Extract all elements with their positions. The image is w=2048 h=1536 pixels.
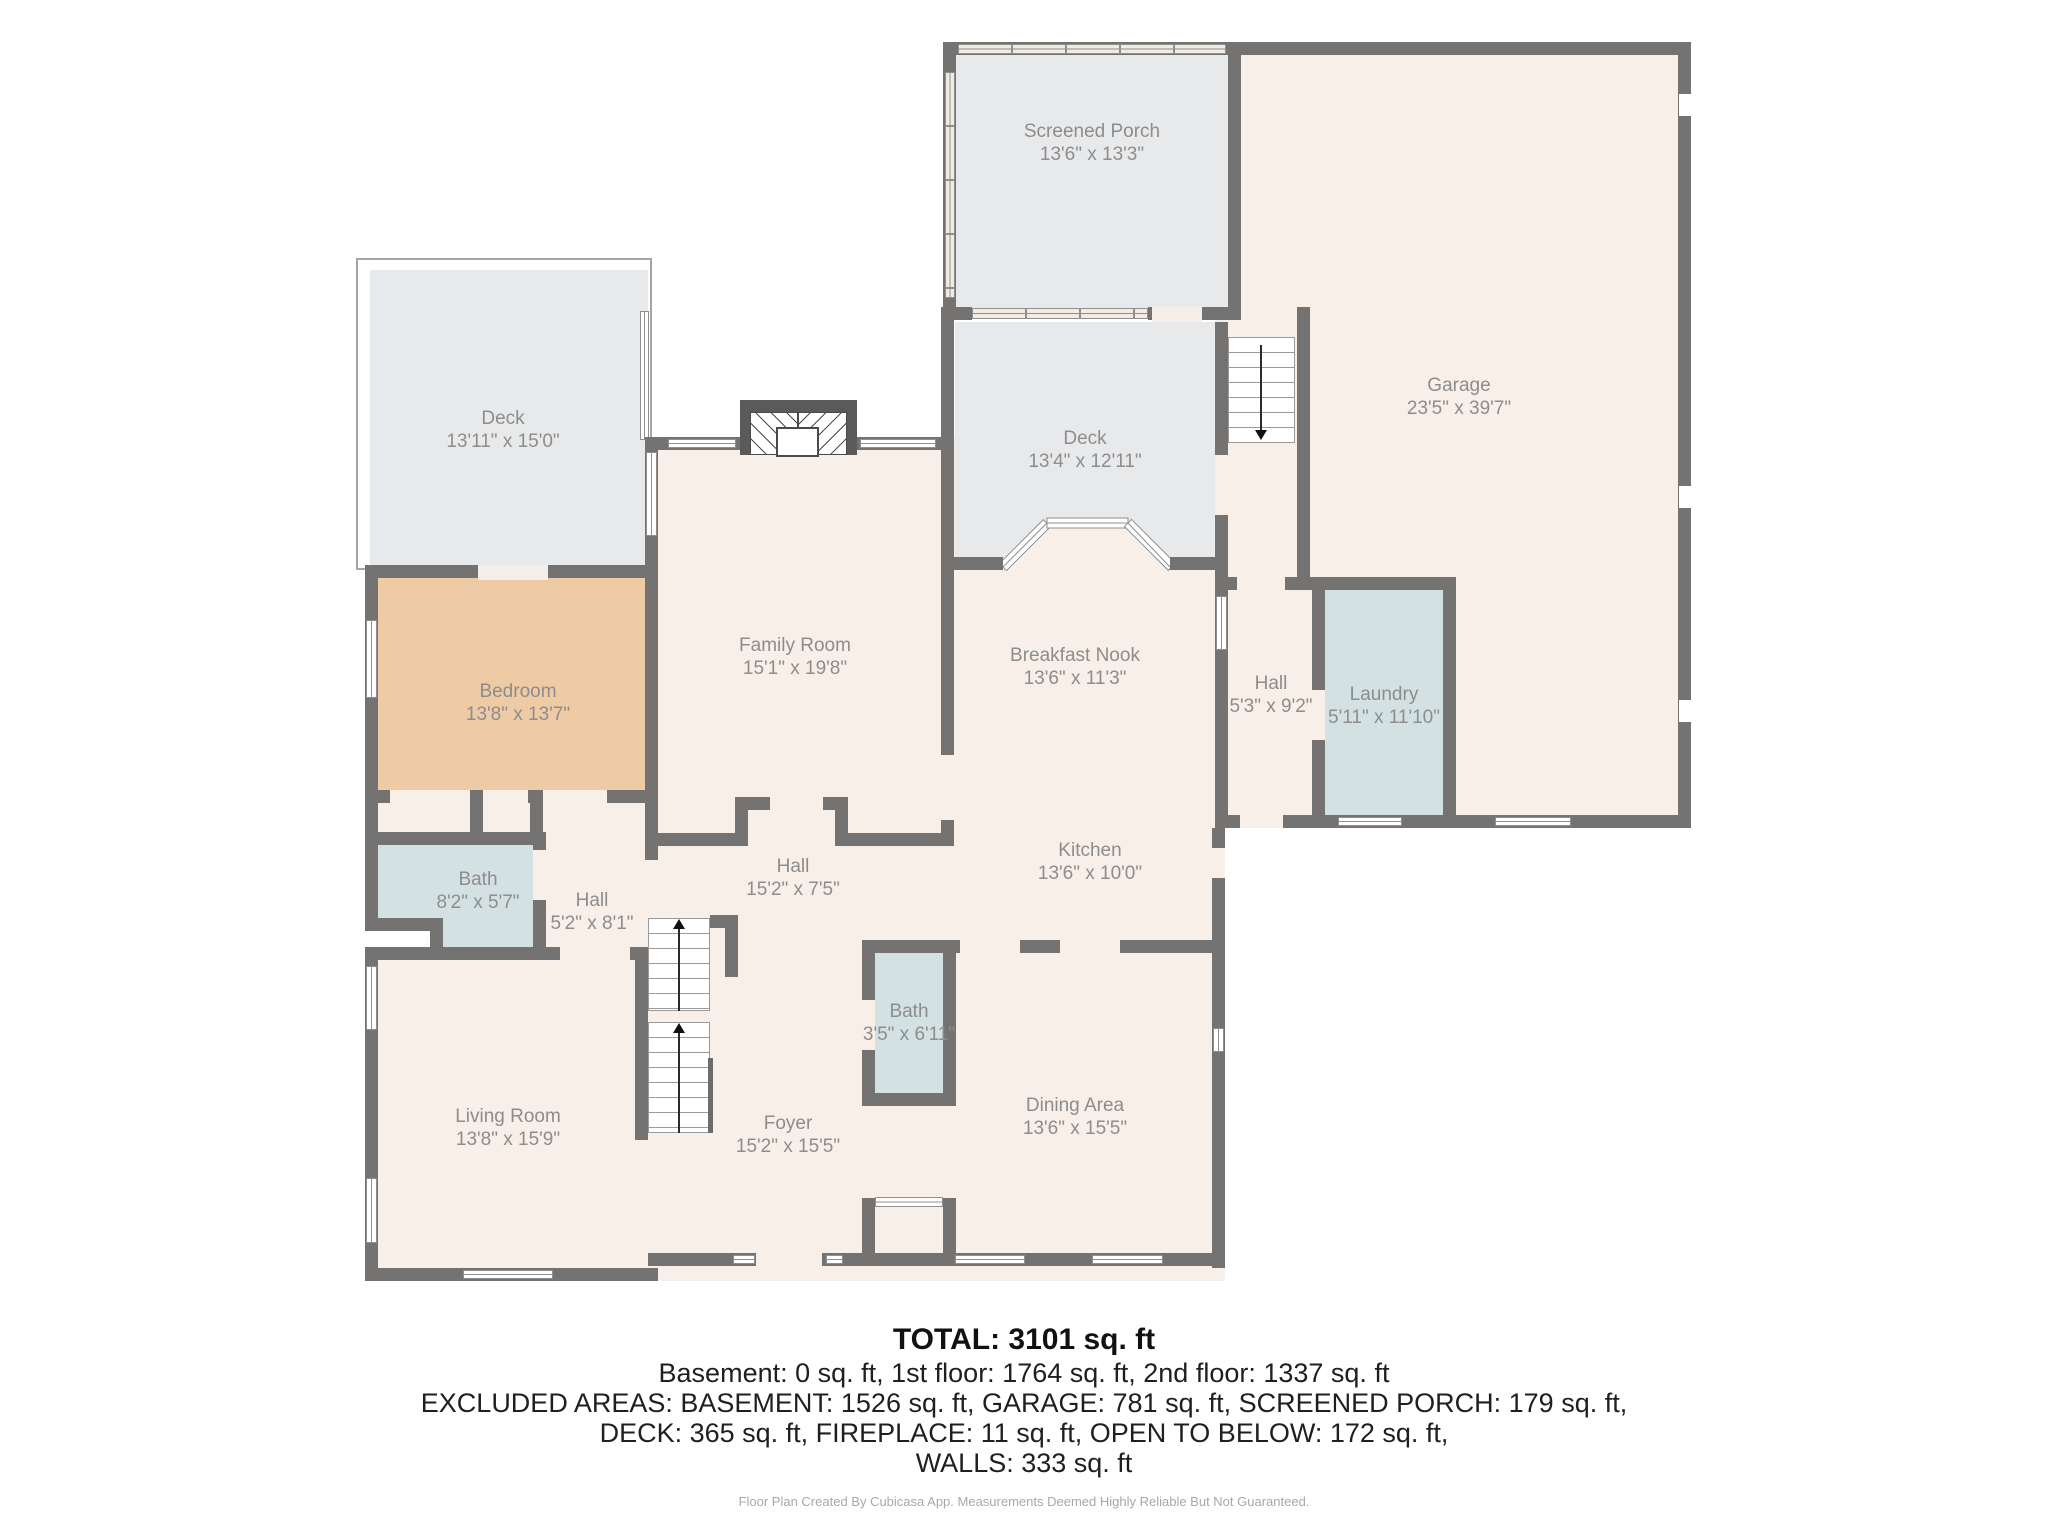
bay-window [985,510,1185,572]
wall-segment [365,832,546,845]
room-dims: 5'3" x 9'2" [1229,695,1312,718]
room-label-screened-porch: Screened Porch 13'6" x 13'3" [1024,120,1160,166]
wall-segment [548,565,658,578]
wall-segment [1228,42,1691,55]
room-name: Garage [1407,374,1511,397]
wall-segment [533,900,546,952]
screened-porch-fill [955,55,1228,309]
wall-segment [1215,515,1228,828]
room-label-deck-left: Deck 13'11" x 15'0" [446,407,559,453]
family-room-window [860,439,936,448]
wall-segment [1285,577,1456,590]
wall-segment [365,918,443,931]
wall-segment [533,832,546,850]
room-label-hall-garage: Hall 5'3" x 9'2" [1229,672,1312,718]
room-name: Kitchen [1038,839,1142,862]
room-dims: 13'4" x 12'11" [1028,450,1141,473]
wall-segment [941,820,954,846]
porch-screen-window [972,308,1148,319]
room-label-hall-bedroom: Hall 5'2" x 8'1" [550,889,633,935]
room-name: Screened Porch [1024,120,1160,143]
wall-segment [365,565,478,578]
wall-segment [862,1198,875,1253]
bath-main-fill-lower [443,918,533,950]
room-name: Bath [436,868,519,891]
wall-segment [1312,740,1325,818]
room-name: Living Room [455,1105,561,1128]
wall-segment [862,1093,956,1106]
wall-segment [645,833,735,846]
room-dims: 13'6" x 13'3" [1024,143,1160,166]
wall-notch [1679,700,1691,722]
living-room-window [366,1178,377,1243]
room-dims: 5'11" x 11'10" [1328,706,1440,729]
wall-segment [470,803,483,832]
dining-window [955,1255,1025,1264]
wall-segment [430,931,443,947]
area-summary: TOTAL: 3101 sq. ft Basement: 0 sq. ft, 1… [0,1322,2048,1478]
kitchen-side-window [1216,596,1227,650]
wall-segment [1202,307,1241,320]
dining-side-window [1213,1028,1224,1052]
wall-segment [1297,307,1310,590]
wall-segment [725,915,738,977]
room-label-family-room: Family Room 15'1" x 19'8" [739,634,851,680]
wall-segment [941,307,954,755]
room-dims: 15'1" x 19'8" [739,657,851,680]
wall-segment [748,797,770,810]
total-area: TOTAL: 3101 sq. ft [0,1322,2048,1358]
room-label-breakfast-nook: Breakfast Nook 13'6" x 11'3" [1010,644,1140,690]
wall-segment [943,1198,956,1253]
wall-segment [635,960,648,1140]
foyer-window [733,1255,755,1264]
wall-segment [1212,878,1225,1268]
stair-direction-line [1260,345,1262,433]
room-dims: 13'6" x 11'3" [1010,667,1140,690]
wall-segment [530,803,543,832]
deck-railing-segment [640,311,649,440]
wall-notch [1679,94,1691,116]
room-dims: 8'2" x 5'7" [436,891,519,914]
wall-segment [1215,322,1228,455]
room-dims: 13'6" x 10'0" [1038,862,1142,885]
porch-screen-window [945,72,955,298]
room-dims: 13'6" x 15'5" [1023,1117,1127,1140]
room-name: Laundry [1328,683,1440,706]
stair-down-arrow-icon [1255,430,1267,440]
room-dims: 15'2" x 7'5" [746,878,840,901]
wall-segment [365,790,390,803]
room-dims: 23'5" x 39'7" [1407,397,1511,420]
room-name: Bedroom [466,680,570,703]
room-label-bedroom: Bedroom 13'8" x 13'7" [466,680,570,726]
room-label-bath-main: Bath 8'2" x 5'7" [436,868,519,914]
wall-segment [954,557,1003,570]
excluded-areas-line3: WALLS: 333 sq. ft [0,1448,2048,1478]
wall-segment [1120,940,1225,953]
wall-segment [1443,577,1456,818]
wall-segment [528,790,543,803]
wall-segment [630,947,648,960]
stair-up-arrow-icon [673,919,685,929]
room-name: Breakfast Nook [1010,644,1140,667]
room-label-bath-center: Bath 3'5" x 6'11" [863,1000,955,1046]
wall-segment [847,833,941,846]
door-opening [1152,307,1202,322]
vestibule-window [875,1197,943,1207]
wall-notch [1679,486,1691,508]
garage-window [1495,817,1571,826]
wall-segment [823,797,835,810]
foyer-window [826,1255,843,1264]
living-room-window [463,1270,553,1279]
room-label-garage: Garage 23'5" x 39'7" [1407,374,1511,420]
wall-segment [862,953,875,1000]
wall-segment [1228,42,1241,320]
room-label-living-room: Living Room 13'8" x 15'9" [455,1105,561,1151]
excluded-areas-line2: DECK: 365 sq. ft, FIREPLACE: 11 sq. ft, … [0,1418,2048,1448]
room-name: Bath [863,1000,955,1023]
wall-segment [1020,940,1060,953]
family-room-side-window [646,452,657,536]
room-label-laundry: Laundry 5'11" x 11'10" [1328,683,1440,729]
room-label-hall-center: Hall 15'2" x 7'5" [746,855,840,901]
stair-rail [708,1058,713,1133]
wall-segment [1170,557,1215,570]
wall-segment [1312,588,1325,690]
room-label-deck-middle: Deck 13'4" x 12'11" [1028,427,1141,473]
wall-segment [1228,577,1237,590]
room-dims: 3'5" x 6'11" [863,1023,955,1046]
floor-areas: Basement: 0 sq. ft, 1st floor: 1764 sq. … [0,1358,2048,1388]
room-name: Hall [746,855,840,878]
room-dims: 5'2" x 8'1" [550,912,633,935]
room-label-foyer: Foyer 15'2" x 15'5" [736,1112,840,1158]
room-name: Deck [446,407,559,430]
room-label-kitchen: Kitchen 13'6" x 10'0" [1038,839,1142,885]
room-dims: 13'11" x 15'0" [446,430,559,453]
room-name: Foyer [736,1112,840,1135]
room-dims: 13'8" x 13'7" [466,703,570,726]
wall-segment [365,947,560,960]
wall-segment [1212,828,1225,848]
bedroom-window [366,620,377,698]
excluded-areas-line1: EXCLUDED AREAS: BASEMENT: 1526 sq. ft, G… [0,1388,2048,1418]
room-name: Hall [550,889,633,912]
dining-window [1092,1255,1163,1264]
exterior-notch [356,931,430,947]
porch-screen-window [958,44,1226,54]
room-name: Hall [1229,672,1312,695]
wall-segment [1215,815,1240,828]
room-name: Deck [1028,427,1141,450]
wall-segment [470,790,483,803]
floor-plan-page: Screened Porch 13'6" x 13'3" Garage 23'5… [0,0,2048,1536]
cubicasa-credit: Floor Plan Created By Cubicasa App. Meas… [0,1494,2048,1509]
firebox [776,427,819,457]
room-name: Family Room [739,634,851,657]
room-dims: 15'2" x 15'5" [736,1135,840,1158]
family-room-window [668,439,736,448]
door-opening [478,565,548,580]
stair-direction-line [678,1030,680,1133]
wall-segment [607,790,658,803]
room-name: Dining Area [1023,1094,1127,1117]
laundry-window [1338,817,1402,826]
stair-up-arrow-icon [673,1023,685,1033]
room-label-dining-area: Dining Area 13'6" x 15'5" [1023,1094,1127,1140]
living-room-window [366,966,377,1030]
room-dims: 13'8" x 15'9" [455,1128,561,1151]
wall-segment [1283,815,1317,828]
stair-direction-line [678,926,680,1011]
wall-segment [735,797,748,846]
